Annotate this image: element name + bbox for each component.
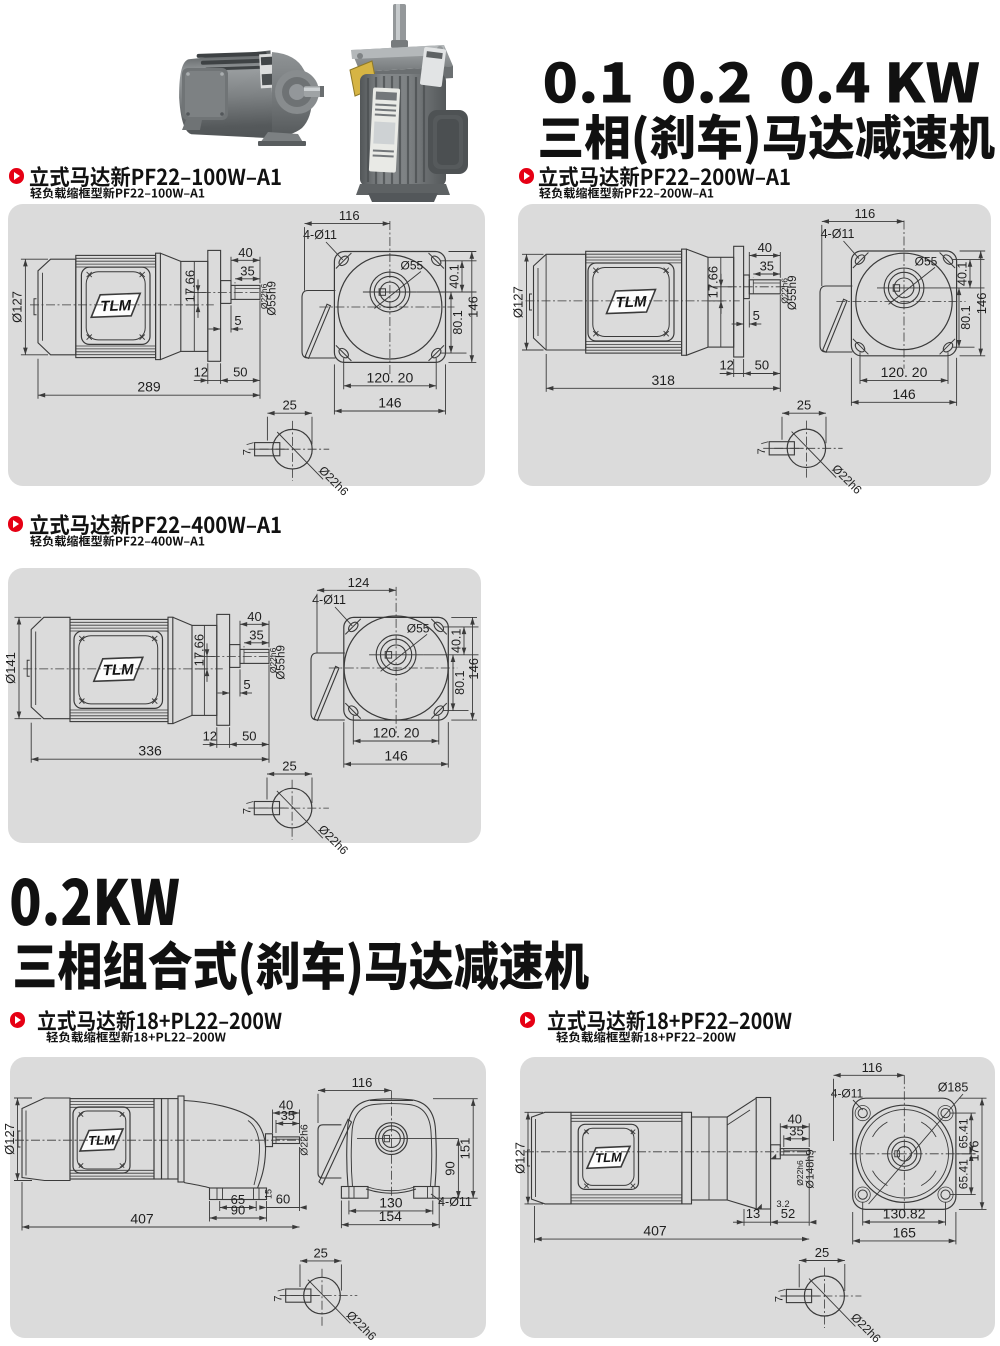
svg-text:Ø148h9: Ø148h9 [805,1149,817,1188]
svg-text:80.1: 80.1 [959,305,973,329]
svg-text:146: 146 [974,293,989,315]
svg-text:Ø127: Ø127 [511,286,526,318]
svg-text:Ø55h9: Ø55h9 [276,645,288,680]
svg-text:116: 116 [339,208,360,223]
svg-text:146: 146 [892,386,916,402]
svg-text:17.66: 17.66 [183,270,198,303]
svg-text:90: 90 [231,1203,245,1218]
svg-text:146: 146 [378,395,402,411]
svg-text:TLM: TLM [100,297,132,315]
svg-text:25: 25 [282,759,296,774]
svg-text:336: 336 [138,743,162,759]
svg-text:35: 35 [249,627,263,642]
svg-text:7: 7 [241,808,253,814]
svg-text:146: 146 [466,658,481,680]
svg-text:25: 25 [313,1245,327,1260]
svg-text:289: 289 [137,379,161,395]
svg-text:17.66: 17.66 [706,266,721,299]
svg-text:12: 12 [194,364,208,379]
svg-text:40: 40 [238,245,252,260]
svg-text:35: 35 [281,1108,295,1123]
svg-text:35: 35 [789,1123,803,1138]
svg-text:Ø22h6: Ø22h6 [795,1160,805,1186]
svg-text:Ø127: Ø127 [9,291,24,323]
svg-text:151: 151 [458,1138,473,1160]
svg-text:7: 7 [273,1296,285,1302]
svg-text:318: 318 [652,372,676,388]
svg-text:40.1: 40.1 [448,264,462,288]
svg-text:124: 124 [348,575,370,590]
svg-text:4-Ø11: 4-Ø11 [438,1195,472,1209]
svg-text:Ø127: Ø127 [2,1123,17,1155]
svg-text:407: 407 [130,1211,154,1227]
svg-text:TLM: TLM [615,293,647,311]
svg-text:40.1: 40.1 [450,629,464,653]
svg-text:60: 60 [276,1192,290,1207]
svg-text:407: 407 [643,1223,667,1239]
svg-text:90: 90 [443,1161,458,1175]
svg-text:5: 5 [234,313,241,328]
svg-text:12: 12 [203,728,217,743]
svg-text:116: 116 [352,1075,373,1090]
svg-text:Ø55: Ø55 [407,621,430,635]
svg-text:Ø55: Ø55 [915,254,938,268]
svg-text:154: 154 [379,1208,403,1224]
svg-text:Ø55h9: Ø55h9 [787,276,799,311]
svg-text:25: 25 [282,398,296,413]
svg-text:15: 15 [264,1189,274,1199]
svg-text:65.41: 65.41 [957,1159,971,1189]
svg-text:35: 35 [240,263,254,278]
svg-text:120. 20: 120. 20 [367,369,414,385]
svg-text:4-Ø11: 4-Ø11 [821,227,855,241]
svg-text:116: 116 [855,206,876,221]
svg-text:7: 7 [242,449,254,455]
svg-text:TLM: TLM [103,661,135,679]
svg-text:165: 165 [893,1224,917,1240]
svg-text:50: 50 [233,364,247,379]
svg-text:Ø127: Ø127 [512,1142,527,1174]
svg-text:7: 7 [773,1296,785,1302]
svg-text:120. 20: 120. 20 [373,725,420,741]
svg-text:Ø55h9: Ø55h9 [267,281,279,316]
svg-text:130.82: 130.82 [883,1206,926,1222]
svg-text:176: 176 [967,1141,981,1162]
svg-text:Ø22h6: Ø22h6 [299,1124,311,1156]
svg-text:120. 20: 120. 20 [881,364,928,380]
svg-text:50: 50 [242,728,256,743]
svg-text:116: 116 [862,1060,883,1075]
svg-text:5: 5 [753,308,760,323]
svg-text:7: 7 [756,448,768,454]
svg-text:35: 35 [760,259,774,274]
svg-text:4-Ø11: 4-Ø11 [831,1086,864,1100]
svg-text:17.66: 17.66 [192,634,207,667]
svg-text:80.1: 80.1 [453,670,467,694]
svg-text:146: 146 [465,296,480,318]
svg-text:50: 50 [755,358,769,373]
svg-text:Ø55: Ø55 [401,259,424,273]
svg-text:4-Ø11: 4-Ø11 [303,228,337,242]
svg-text:Ø141: Ø141 [3,652,18,684]
svg-text:40: 40 [758,240,772,255]
svg-text:Ø185: Ø185 [938,1081,969,1095]
svg-text:80.1: 80.1 [451,310,465,334]
svg-text:13: 13 [746,1206,760,1221]
svg-text:25: 25 [815,1245,829,1260]
svg-text:5: 5 [243,677,250,692]
svg-text:12: 12 [719,358,733,373]
svg-text:25: 25 [797,398,811,413]
svg-text:3.2: 3.2 [776,1199,789,1210]
svg-text:40.1: 40.1 [956,262,970,286]
svg-text:146: 146 [384,748,408,764]
svg-text:40: 40 [247,609,261,624]
